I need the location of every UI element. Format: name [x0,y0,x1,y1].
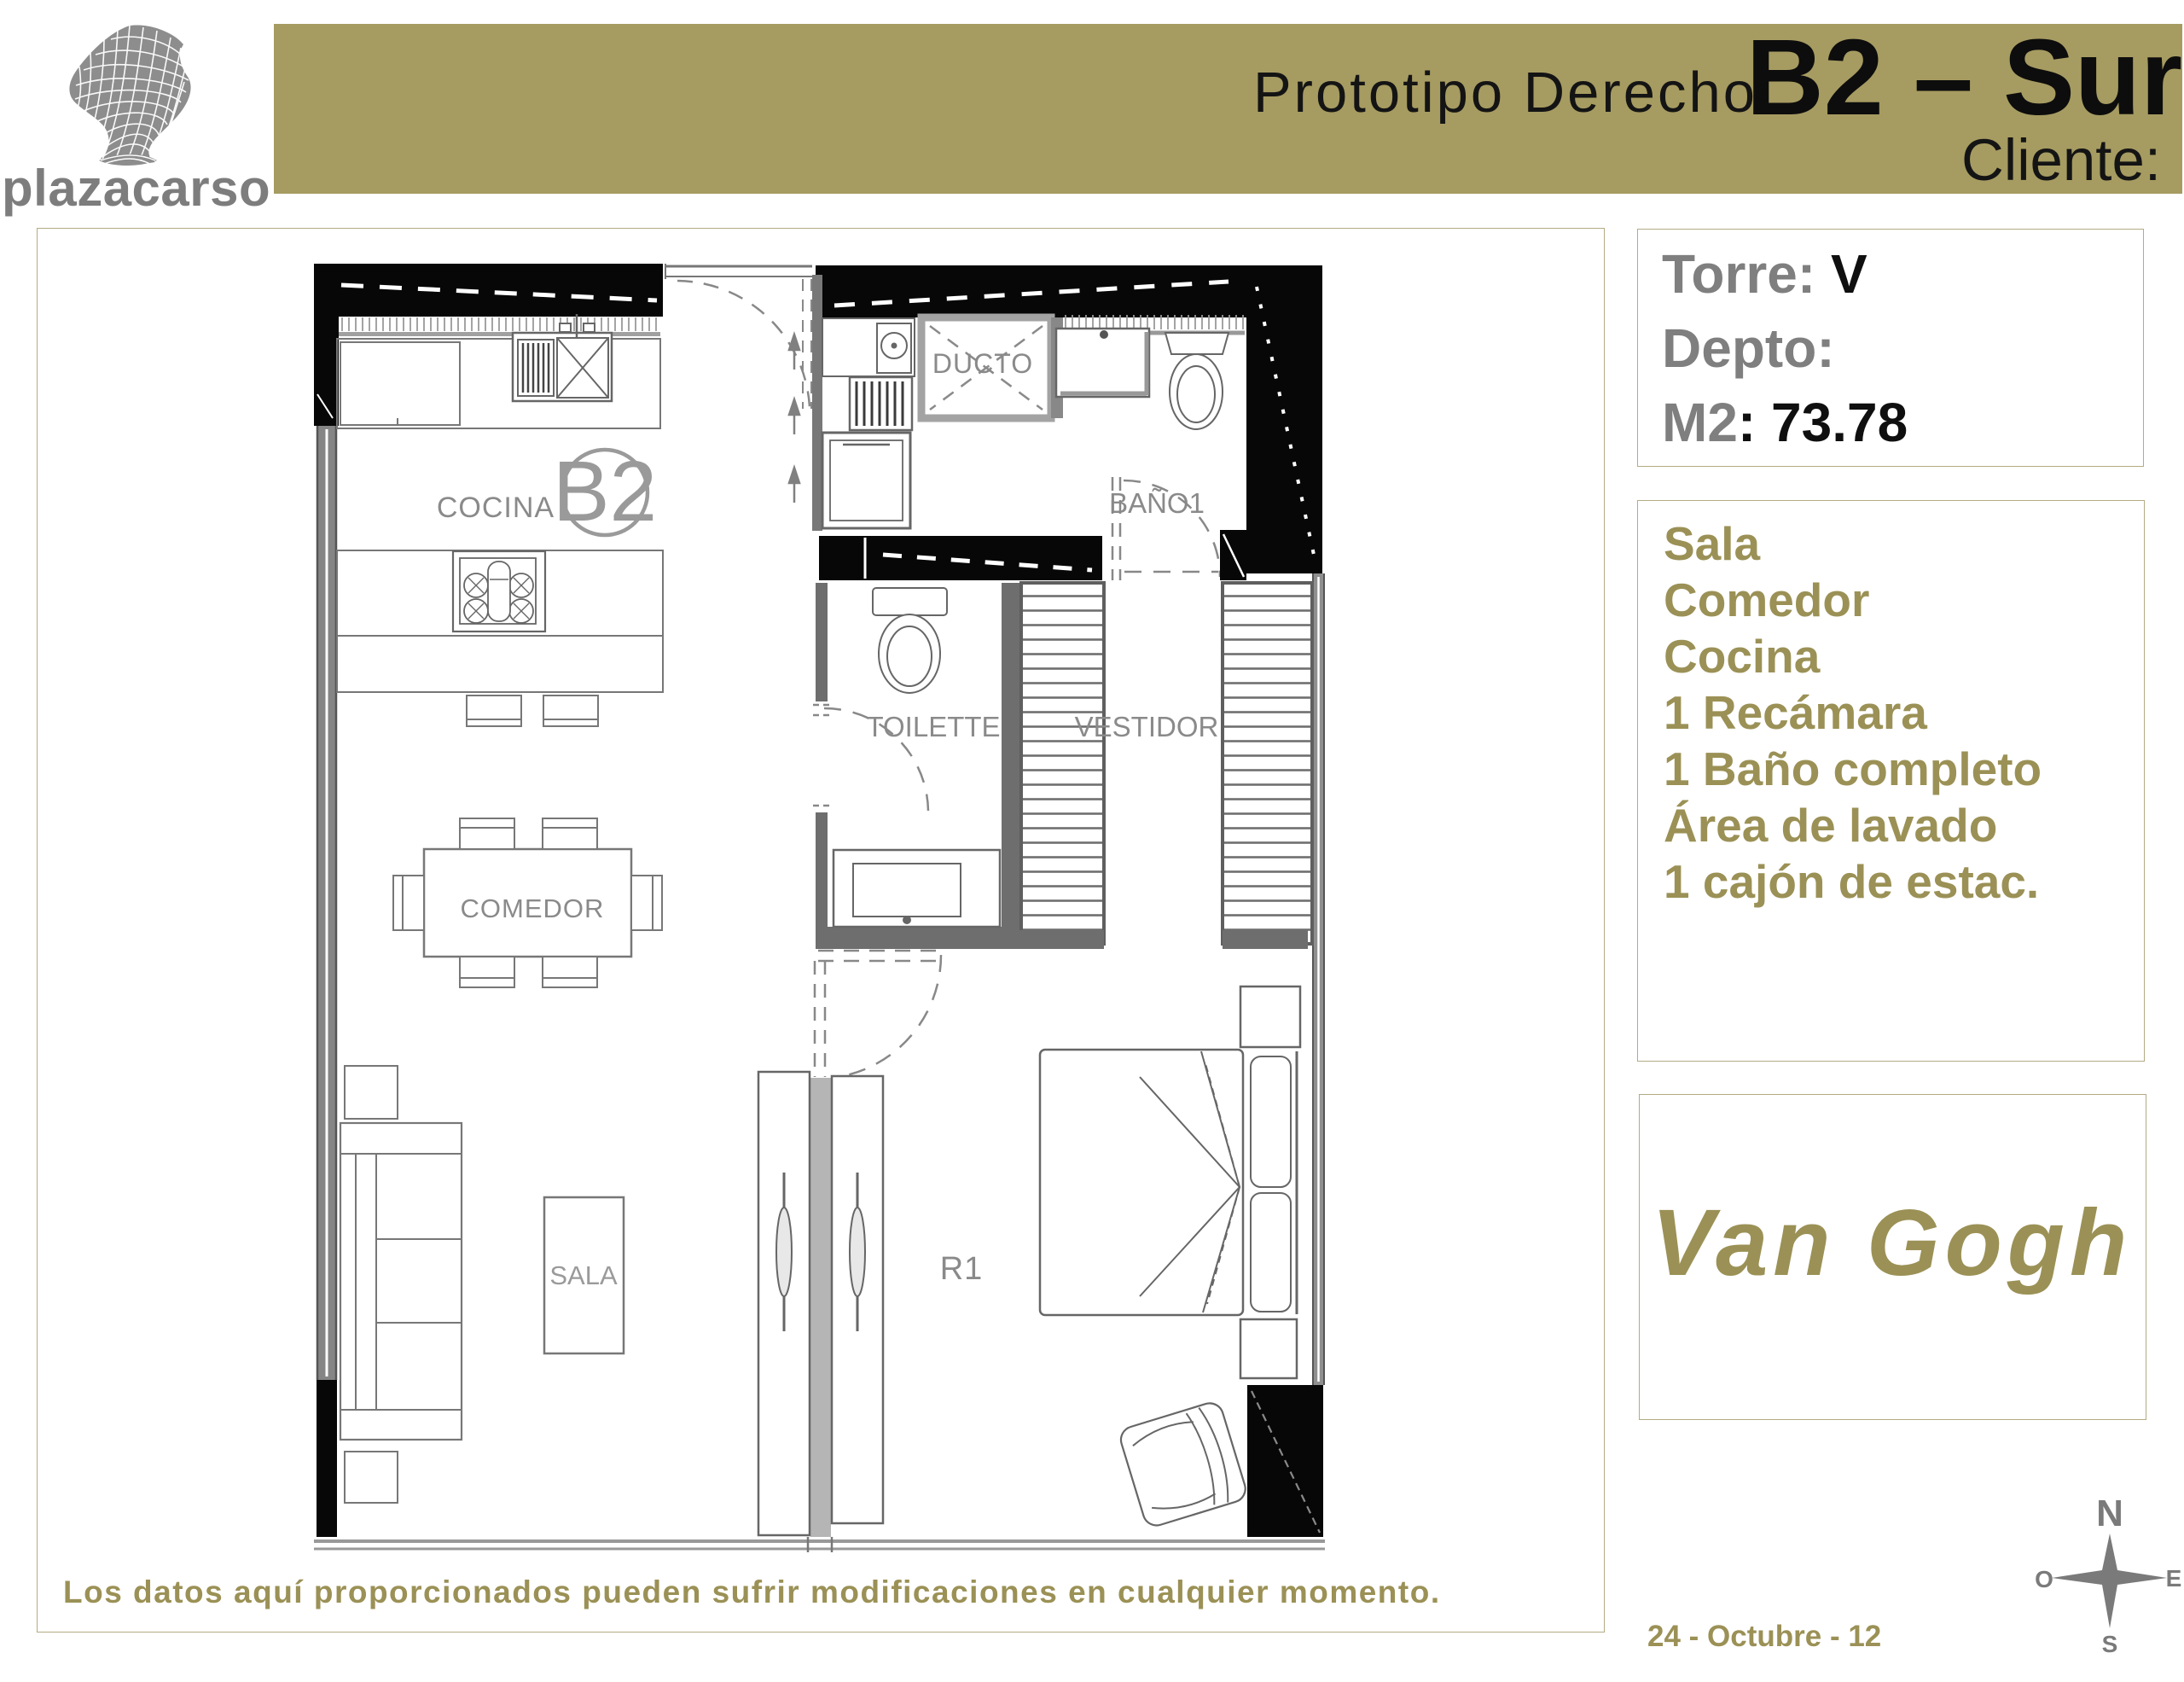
svg-text:DUCTO: DUCTO [932,348,1033,379]
svg-text:B2: B2 [553,444,657,539]
svg-text:VESTIDOR: VESTIDOR [1075,711,1219,742]
svg-text:COMEDOR: COMEDOR [461,893,605,923]
svg-text:TOILETTE: TOILETTE [866,711,1000,742]
svg-text:SALA: SALA [549,1260,618,1290]
svg-text:COCINA: COCINA [437,492,555,524]
svg-text:S: S [2102,1631,2118,1656]
svg-text:E: E [2166,1565,2182,1592]
svg-text:R1: R1 [940,1251,984,1287]
svg-text:O: O [2035,1566,2053,1592]
svg-text:BAÑO1: BAÑO1 [1109,487,1205,519]
svg-text:N: N [2096,1493,2123,1534]
